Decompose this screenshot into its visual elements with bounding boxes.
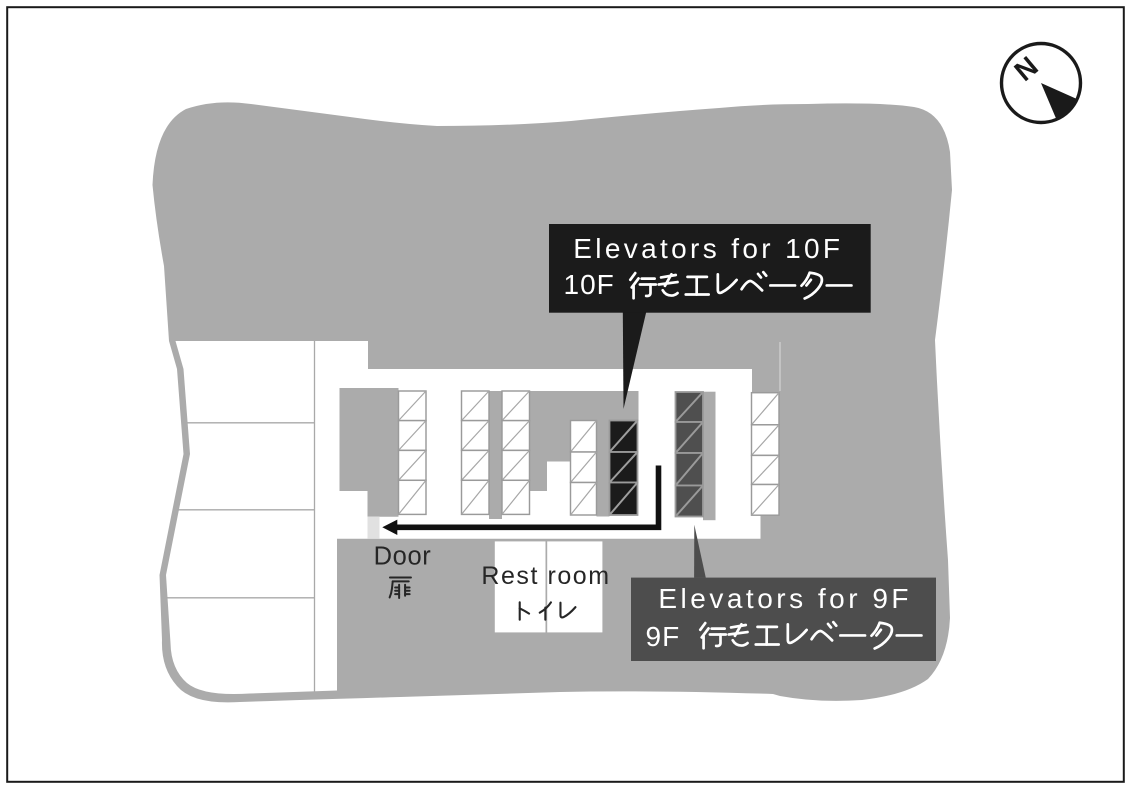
svg-text:Rest room: Rest room: [481, 562, 610, 590]
svg-text:10F: 10F: [564, 269, 615, 300]
svg-text:Door: Door: [374, 542, 432, 570]
svg-text:9F: 9F: [646, 621, 681, 652]
svg-text:Elevators for 10F: Elevators for 10F: [573, 233, 843, 264]
svg-text:Elevators for 9F: Elevators for 9F: [658, 583, 912, 614]
